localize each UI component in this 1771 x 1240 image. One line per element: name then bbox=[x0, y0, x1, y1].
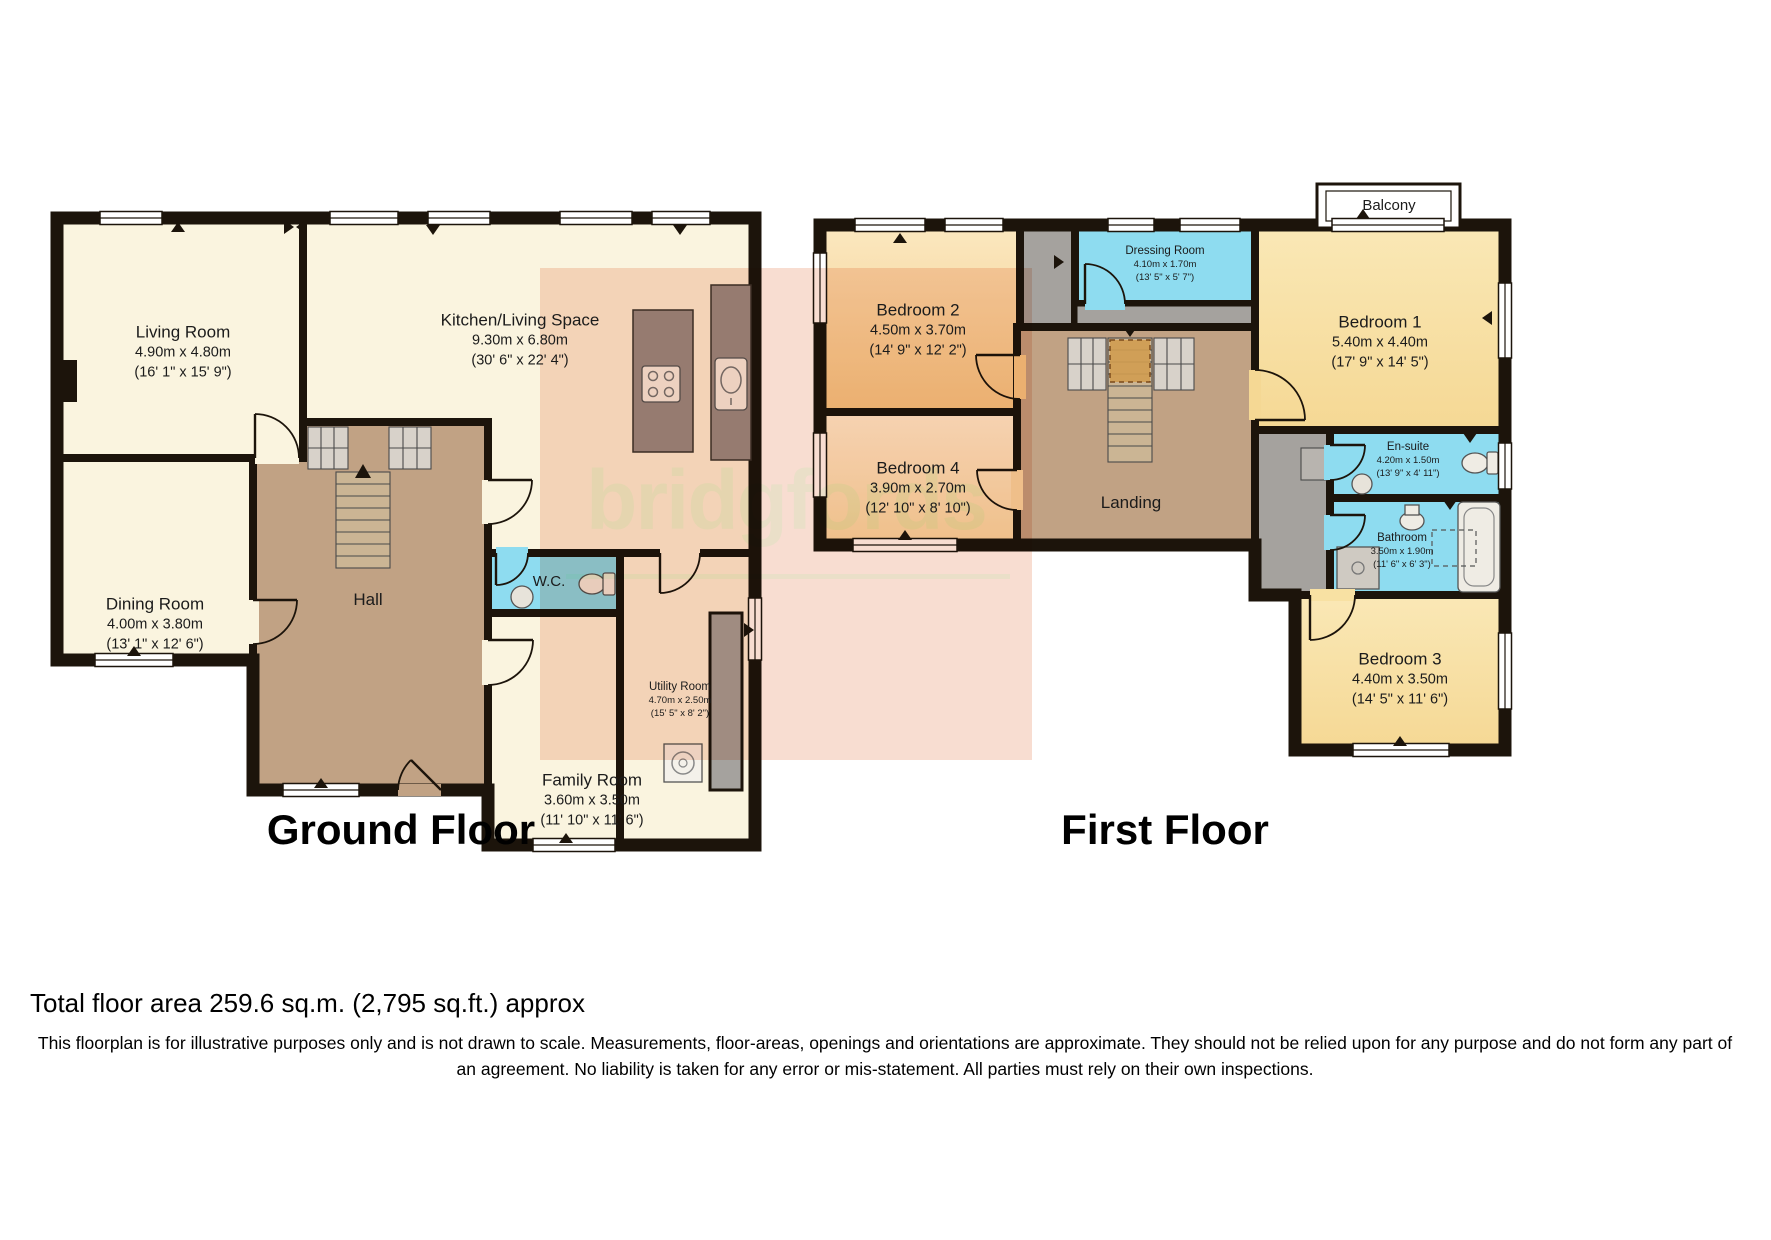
wc-toilet-icon bbox=[579, 573, 615, 595]
chimney-breast bbox=[63, 360, 77, 402]
room-label-landing: Landing bbox=[1101, 492, 1162, 514]
disclaimer-text: This floorplan is for illustrative purpo… bbox=[32, 1030, 1738, 1083]
hob-icon bbox=[642, 366, 680, 402]
room-label-bedroom-4: Bedroom 4 3.90m x 2.70m (12' 10" x 8' 10… bbox=[865, 458, 970, 519]
wc-basin-icon bbox=[511, 586, 533, 608]
sink-icon bbox=[715, 358, 747, 410]
room-label-ensuite: En-suite 4.20m x 1.50m (13' 9" x 4' 11") bbox=[1376, 440, 1439, 480]
ground-floor-plan bbox=[57, 212, 762, 852]
room-label-wc: W.C. bbox=[533, 572, 566, 592]
room-label-dining-room: Dining Room 4.00m x 3.80m (13' 1" x 12' … bbox=[106, 594, 204, 655]
room-label-kitchen: Kitchen/Living Space 9.30m x 6.80m (30' … bbox=[441, 310, 600, 371]
cupboard-small bbox=[1301, 448, 1327, 480]
total-floor-area: Total floor area 259.6 sq.m. (2,795 sq.f… bbox=[30, 988, 585, 1019]
staircase-first bbox=[1108, 338, 1152, 462]
room-label-utility-room: Utility Room 4.70m x 2.50m (15' 5" x 8' … bbox=[649, 680, 712, 720]
room-label-bathroom: Bathroom 3.50m x 1.90m (11' 6" x 6' 3") bbox=[1371, 531, 1434, 571]
room-label-living-room: Living Room 4.90m x 4.80m (16' 1" x 15' … bbox=[134, 322, 231, 383]
ensuite-toilet-icon bbox=[1462, 452, 1498, 474]
room-label-hall: Hall bbox=[353, 589, 382, 611]
room-label-dressing-room: Dressing Room 4.10m x 1.70m (13' 5" x 5'… bbox=[1125, 244, 1204, 284]
room-label-bedroom-1: Bedroom 1 5.40m x 4.40m (17' 9" x 14' 5"… bbox=[1331, 312, 1428, 373]
floorplan-page: bridgfords Living Room 4.90m x 4.80m (16… bbox=[0, 0, 1771, 1240]
room-label-bedroom-2: Bedroom 2 4.50m x 3.70m (14' 9" x 12' 2"… bbox=[869, 300, 966, 361]
room-label-balcony: Balcony bbox=[1362, 196, 1415, 216]
ground-floor-heading: Ground Floor bbox=[267, 806, 535, 854]
bathtub-icon bbox=[1458, 502, 1500, 592]
corridor-top-floor bbox=[1020, 225, 1075, 327]
ensuite-basin-icon bbox=[1352, 474, 1372, 494]
staircase-ground bbox=[336, 464, 390, 568]
utility-corridor bbox=[710, 613, 742, 790]
room-label-bedroom-3: Bedroom 3 4.40m x 3.50m (14' 5" x 11' 6"… bbox=[1352, 649, 1448, 710]
washing-machine-icon bbox=[664, 744, 702, 782]
room-label-family-room: Family Room 3.60m x 3.50m (11' 10" x 11'… bbox=[540, 770, 643, 831]
first-floor-heading: First Floor bbox=[1061, 806, 1269, 854]
